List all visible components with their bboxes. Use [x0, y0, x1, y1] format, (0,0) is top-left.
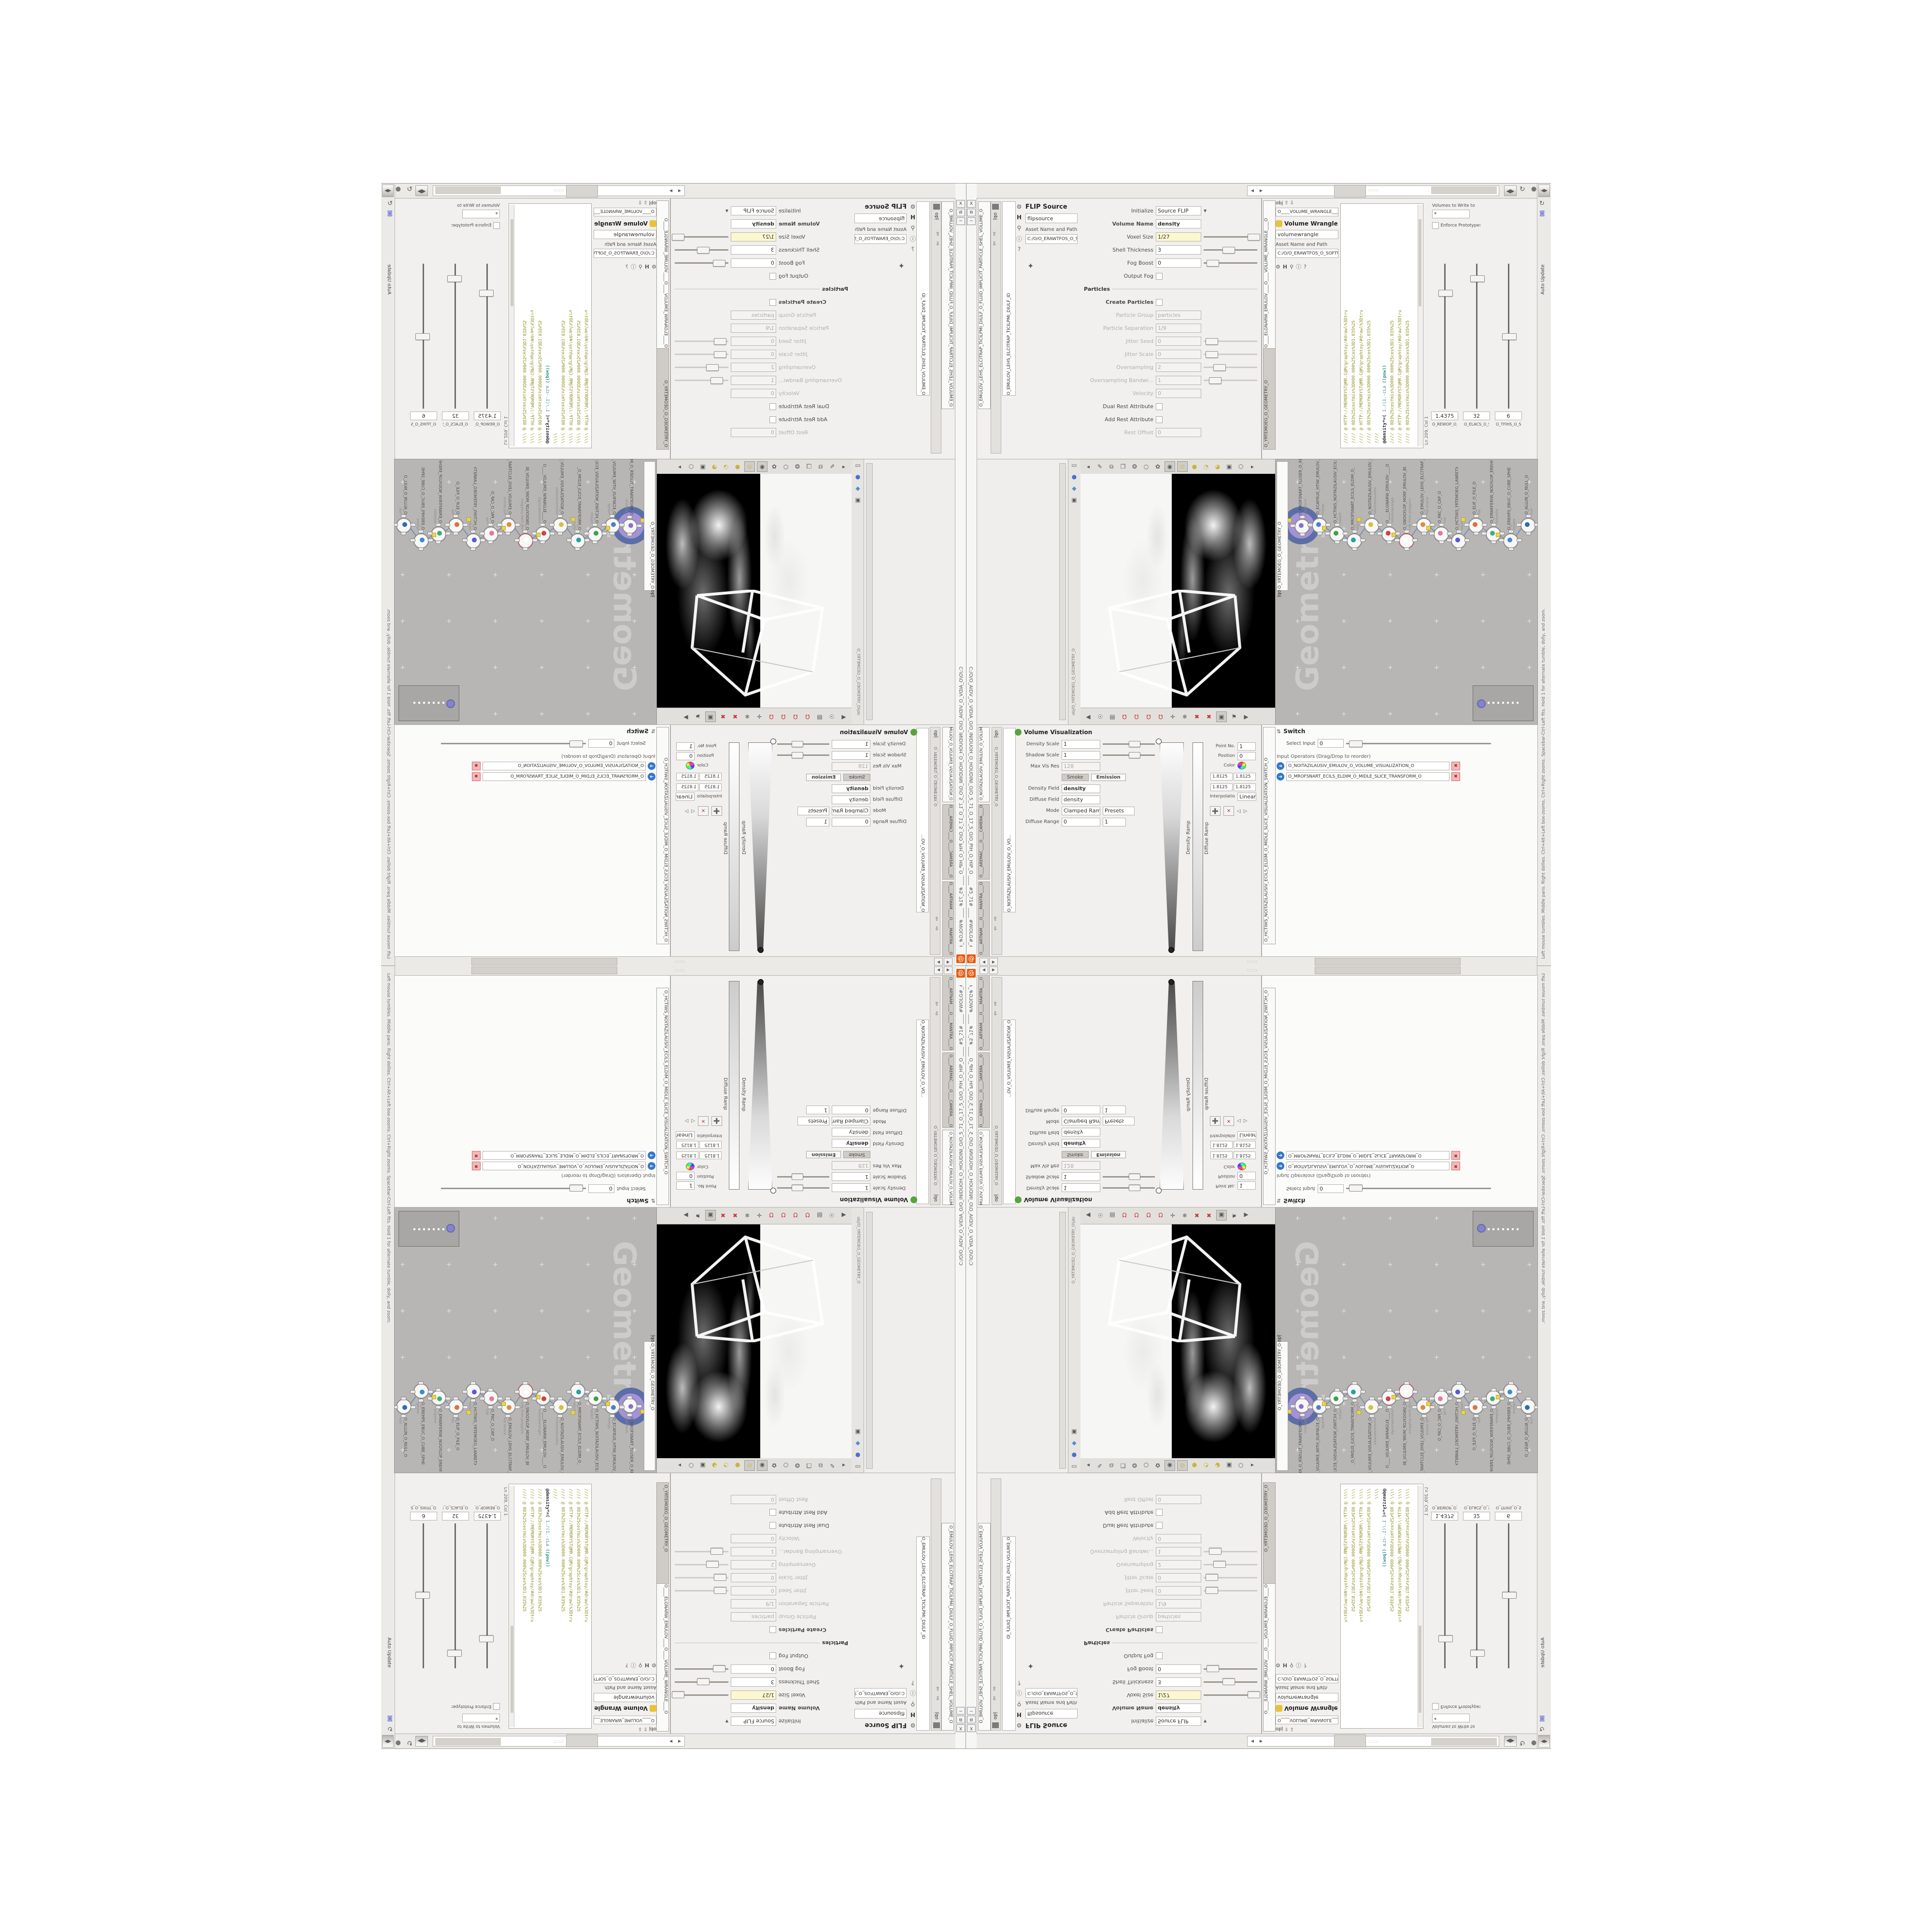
- interpolation-combo[interactable]: Linear: [1237, 1132, 1256, 1140]
- diffuse-range-field[interactable]: 0: [832, 1106, 870, 1115]
- view-box-icon[interactable]: ▣: [1216, 711, 1227, 722]
- color-value-field[interactable]: 1.8125: [1210, 1151, 1233, 1159]
- pane-split-icon[interactable]: ◀▶: [1538, 185, 1550, 197]
- display-flag[interactable]: [1496, 1395, 1500, 1399]
- auto-update-icon[interactable]: ↻: [1539, 200, 1545, 207]
- node-flag[interactable]: [1526, 532, 1531, 535]
- node-flag[interactable]: [1508, 547, 1514, 551]
- magnet-point-icon[interactable]: Ω: [1144, 1210, 1153, 1220]
- node-flag[interactable]: [1335, 1406, 1340, 1409]
- houdini-help-icon[interactable]: H: [1014, 1709, 1024, 1720]
- node-flag[interactable]: [1491, 1406, 1496, 1409]
- param-field[interactable]: particles: [1156, 1612, 1201, 1621]
- network-pane-tab[interactable]: O_YRTEMOEG_O_GEOMETRY_O: [1277, 461, 1288, 591]
- handles-sphere-icon[interactable]: ●: [1068, 471, 1080, 483]
- bulb-half-icon[interactable]: ◔: [721, 1461, 731, 1470]
- node-flag[interactable]: [1412, 1406, 1417, 1409]
- node-flag[interactable]: [1526, 1397, 1531, 1400]
- flip-node-path-combo[interactable]: O_EMULOV_LEHS_ELCITRAP_TICILPMI_DIULF_ID: [916, 201, 930, 396]
- select-input-field[interactable]: 0: [1318, 1184, 1344, 1193]
- network-node[interactable]: O_SNOGYLOP_MORF_EMULOV_BDV_O_VDB_VOLUME_…: [518, 532, 535, 548]
- vex-scrollbar[interactable]: [510, 205, 514, 446]
- wrangle-pane-tab[interactable]: O____ELGNARW_EMULOV____O____VOLUME_WRANG…: [1263, 200, 1276, 350]
- objects-cube-icon[interactable]: ◆: [852, 483, 864, 494]
- param-field[interactable]: 0: [1156, 1495, 1201, 1504]
- magnifier-icon[interactable]: ⚲: [1290, 263, 1293, 270]
- shadow-scale-field[interactable]: 1: [1062, 751, 1100, 760]
- snowflake-icon[interactable]: ❄: [1180, 712, 1190, 722]
- restore-button[interactable]: ⧉: [956, 1716, 965, 1723]
- node-flag[interactable]: [418, 1399, 424, 1402]
- node-flag[interactable]: [550, 1397, 555, 1400]
- magnet-multi-icon[interactable]: Ω: [767, 1210, 776, 1220]
- magnifier-icon[interactable]: ⚲: [639, 1662, 642, 1669]
- select-box-icon[interactable]: ▭: [1068, 1461, 1080, 1473]
- color-value-field[interactable]: 1.8125: [1234, 1151, 1256, 1159]
- param-field[interactable]: 0: [1156, 1664, 1201, 1674]
- density-scale-field[interactable]: 1: [832, 740, 870, 749]
- forward-icon[interactable]: ▶: [1241, 712, 1251, 722]
- color-value-field[interactable]: 1.8125: [1210, 783, 1233, 791]
- pin-icon[interactable]: ☉: [1095, 1210, 1105, 1220]
- network-node[interactable]: O_ALLUN_O_NULL_Onull: [397, 516, 413, 533]
- reorder-arrow-icon[interactable]: ➜: [1277, 773, 1284, 781]
- density-field-field[interactable]: density: [832, 1139, 870, 1148]
- node-flag[interactable]: [1439, 1388, 1444, 1392]
- help-icon[interactable]: ?: [1014, 1677, 1024, 1688]
- display-flag[interactable]: [1357, 1410, 1361, 1415]
- magnet-multi-icon[interactable]: Ω: [1156, 712, 1165, 722]
- point-no-field[interactable]: 1: [676, 1182, 695, 1190]
- down-arrow-icon[interactable]: ⇩: [935, 925, 939, 932]
- color-value-field[interactable]: 1.8125: [676, 1141, 698, 1149]
- pin-icon[interactable]: ☉: [827, 712, 837, 722]
- network-node[interactable]: O_MROFSNART_TLUSER_O_RESULT_TRANSFORM_Ot…: [623, 517, 639, 534]
- bulb-half-icon[interactable]: ◔: [721, 462, 731, 471]
- next-point-icon[interactable]: ▷: [1244, 1116, 1248, 1126]
- writeto-field[interactable]: *: [462, 210, 500, 218]
- node-flag[interactable]: [1404, 1381, 1409, 1385]
- network-node[interactable]: O_ELIF_O_FILE_Ofile: [449, 1399, 465, 1416]
- network-editor[interactable]: ++++++++++++++++++++++++++++++++++++ Geo…: [394, 459, 657, 725]
- param-checkbox[interactable]: [769, 1653, 776, 1660]
- scrollbar-thumb[interactable]: [471, 958, 617, 966]
- display-flag[interactable]: [432, 1395, 436, 1399]
- param-checkbox[interactable]: [769, 1522, 776, 1529]
- slider-handle[interactable]: [480, 290, 494, 297]
- node-flag[interactable]: [1508, 1381, 1514, 1385]
- hands-icon[interactable]: ✿: [769, 462, 779, 471]
- down-arrow-icon[interactable]: ⇩: [936, 1685, 940, 1691]
- info-icon[interactable]: ⓘ: [1014, 233, 1024, 244]
- notes-icon[interactable]: ▤: [815, 1210, 824, 1220]
- slider-handle[interactable]: [1209, 1548, 1222, 1555]
- remove-item-icon[interactable]: ✖: [1451, 1151, 1460, 1160]
- scrollbar-grip[interactable]: ::::::: [553, 1740, 564, 1744]
- node-flag[interactable]: [1464, 1406, 1469, 1409]
- handles-sphere-icon[interactable]: ●: [852, 471, 864, 483]
- bulb-half-icon[interactable]: ◔: [1201, 1461, 1211, 1470]
- info-icon[interactable]: ⓘ: [1014, 1688, 1024, 1699]
- node-flag[interactable]: [1464, 539, 1470, 542]
- network-breadcrumb[interactable]: obj: [1277, 590, 1286, 619]
- display-flag[interactable]: [606, 1402, 610, 1406]
- pane-tab-scroll-icon[interactable]: ◀▶: [415, 1736, 428, 1747]
- density-field-field[interactable]: density: [1062, 784, 1100, 793]
- param-field[interactable]: 0: [731, 428, 776, 437]
- up-arrow-icon[interactable]: ⇧: [936, 231, 940, 237]
- node-flag[interactable]: [411, 1406, 416, 1409]
- smoke-tab[interactable]: Smoke: [843, 774, 870, 781]
- color-value-field[interactable]: 1.8125: [1210, 773, 1233, 781]
- bulb-dim-icon[interactable]: ◕: [710, 462, 719, 471]
- aux-scrollbar[interactable]: [1059, 1212, 1066, 1469]
- param-field[interactable]: 0: [731, 337, 776, 346]
- network-node[interactable]: O_PAC_O_CAP_Ocap: [1432, 1391, 1449, 1407]
- snowflake-icon[interactable]: ❄: [1180, 1210, 1190, 1220]
- scrollbar-grip[interactable]: ::::::: [1247, 968, 1258, 973]
- vex-scrollbar[interactable]: [510, 1486, 514, 1727]
- volvis-tab[interactable]: O_NOITAZILAUSIV_EMULOV_O_VOLUME_VISUALIZ…: [978, 727, 990, 802]
- molecule-icon[interactable]: ❂: [793, 462, 802, 471]
- param-field[interactable]: density: [731, 219, 776, 228]
- notes-icon[interactable]: ▤: [1108, 1210, 1117, 1220]
- handles-sphere-icon[interactable]: ●: [1068, 1449, 1080, 1461]
- density-scale-field[interactable]: 1: [1062, 740, 1100, 749]
- help-icon[interactable]: ?: [908, 1677, 918, 1688]
- red-cross-b-icon[interactable]: ✖: [718, 1210, 728, 1220]
- wrangle-path-field[interactable]: C:/O/O_ERAWTFOS_O_SOFTWARE_O...: [594, 1674, 656, 1683]
- node-flag[interactable]: [1517, 1390, 1522, 1393]
- node-flag[interactable]: [1335, 523, 1340, 526]
- node-flag[interactable]: [394, 1406, 398, 1409]
- interpolation-combo[interactable]: Linear: [676, 1132, 695, 1140]
- network-node[interactable]: O_ELIF_O_FILE_Ofile: [1467, 516, 1483, 533]
- ramp-point-bottom[interactable]: [758, 947, 764, 953]
- node-flag[interactable]: [410, 539, 415, 542]
- node-flag[interactable]: [1421, 1397, 1427, 1400]
- diffuse-field-field[interactable]: density: [832, 796, 870, 804]
- view-box-icon[interactable]: ▣: [705, 1210, 716, 1221]
- back-icon[interactable]: ◀: [1083, 712, 1093, 722]
- info-icon[interactable]: ⓘ: [631, 263, 636, 270]
- network-node[interactable]: O_HCTIWS_NOITAZILAUSIV_ECILS_ELDIM_Oswit…: [1328, 1391, 1344, 1407]
- max-vis-res-field[interactable]: 128: [832, 1162, 870, 1170]
- node-flag[interactable]: [1307, 1406, 1313, 1409]
- spare-value-field[interactable]: 6: [410, 1512, 437, 1520]
- ramp-point-bottom[interactable]: [758, 979, 764, 985]
- slider-handle[interactable]: [1248, 234, 1260, 241]
- delete-point-icon[interactable]: ✕: [698, 1116, 709, 1126]
- forward-icon[interactable]: ▶: [1241, 1210, 1251, 1220]
- volvis-tab[interactable]: O____AREMAC____O____CAMERA____O: [942, 1052, 954, 1128]
- color-wheel-swatch[interactable]: [1237, 1163, 1246, 1170]
- vex-editor[interactable]: //// @ HTTP://MEMORYST@MR.C@M/graphtoy/#…: [509, 1484, 592, 1729]
- combo-arrow-icon[interactable]: ▼: [725, 209, 728, 213]
- param-field[interactable]: 1: [1156, 1547, 1201, 1556]
- volvis-slider[interactable]: [1103, 1187, 1155, 1189]
- headlight-icon[interactable]: ⊙: [744, 1460, 755, 1471]
- node-flag[interactable]: [1534, 523, 1538, 526]
- param-field[interactable]: 0: [731, 1573, 776, 1582]
- display-flag[interactable]: [606, 526, 610, 530]
- houdini-help-icon[interactable]: H: [645, 263, 649, 270]
- node-flag[interactable]: [401, 532, 406, 535]
- magnet-prim-icon[interactable]: Ω: [791, 1210, 800, 1220]
- close-button[interactable]: X: [956, 1724, 965, 1732]
- node-flag[interactable]: [584, 539, 590, 542]
- node-flag[interactable]: [401, 514, 406, 518]
- view-box-icon[interactable]: ▣: [705, 711, 716, 722]
- network-minimap[interactable]: [1473, 685, 1534, 721]
- color-wheel-swatch[interactable]: [686, 762, 695, 769]
- help-icon[interactable]: ?: [625, 263, 628, 270]
- flag-icon[interactable]: ⚑: [693, 712, 703, 722]
- forward-icon[interactable]: ▸: [1248, 1461, 1257, 1470]
- switch-item-name[interactable]: O_NOITAZILAUSIV_EMULOV_O_VOLUME_VISUALIZ…: [483, 762, 646, 770]
- node-flag[interactable]: [1491, 1388, 1496, 1392]
- scroll-right-icon[interactable]: ▶: [667, 1738, 675, 1745]
- volvis-slider[interactable]: [1103, 754, 1155, 756]
- scroll-left-icon[interactable]: ◀: [944, 958, 952, 966]
- delete-point-icon[interactable]: ✕: [698, 806, 709, 816]
- slider-handle[interactable]: [416, 333, 430, 340]
- slider-handle[interactable]: [672, 234, 684, 241]
- network-node[interactable]: O_HCTIWS_YRTEMOEG_LANRETXE_O_EXTERNAL_GE…: [466, 532, 483, 548]
- param-slider[interactable]: [675, 1590, 728, 1591]
- node-flag[interactable]: [1352, 1381, 1357, 1385]
- select-input-field[interactable]: 0: [588, 1184, 614, 1193]
- network-node[interactable]: O_ALLUN_O_NULL_Onull: [1519, 1399, 1535, 1416]
- red-cross-a-icon[interactable]: ✖: [1192, 1210, 1202, 1220]
- node-flag[interactable]: [428, 1390, 433, 1393]
- node-flag[interactable]: [1387, 523, 1392, 526]
- spare-slider[interactable]: [1508, 264, 1509, 409]
- slider-handle[interactable]: [714, 351, 726, 358]
- scroll-right-icon[interactable]: ▶: [934, 966, 943, 974]
- slider-handle[interactable]: [416, 1592, 430, 1599]
- display-flag[interactable]: [467, 1410, 471, 1415]
- network-pane-tab[interactable]: O_YRTEMOEG_O_GEOMETRY_O: [1277, 1341, 1288, 1471]
- magnet-grid-icon[interactable]: Ω: [1120, 1210, 1129, 1220]
- param-slider[interactable]: [1204, 367, 1257, 368]
- diffuse-range-field[interactable]: 0: [1062, 818, 1100, 826]
- red-cross-b-icon[interactable]: ✖: [1204, 712, 1214, 722]
- forward-icon[interactable]: ▸: [675, 462, 684, 471]
- select-input-field[interactable]: 0: [1318, 739, 1344, 748]
- param-field[interactable]: 2: [731, 363, 776, 372]
- red-cross-b-icon[interactable]: ✖: [1204, 1210, 1214, 1220]
- molecule-icon[interactable]: ❂: [793, 1461, 802, 1470]
- node-flag[interactable]: [1429, 1397, 1435, 1400]
- slider-handle[interactable]: [480, 1635, 494, 1642]
- param-field[interactable]: density: [1156, 1704, 1201, 1713]
- gear-icon[interactable]: ⚙: [908, 1720, 918, 1731]
- close-button[interactable]: X: [956, 200, 965, 208]
- node-flag[interactable]: [505, 1414, 511, 1418]
- slider-handle[interactable]: [792, 752, 803, 758]
- param-checkbox[interactable]: [1156, 299, 1163, 306]
- node-flag[interactable]: [1474, 514, 1479, 518]
- flip-path-field[interactable]: C:/O/O_ERAWTFOS_O_SOFTWARE_O...: [1025, 1688, 1078, 1698]
- node-flag[interactable]: [1481, 1397, 1487, 1400]
- breadcrumb[interactable]: obj: [993, 1712, 998, 1719]
- headlight-icon[interactable]: ⊙: [1177, 1460, 1188, 1471]
- auto-update-label[interactable]: Auto Update: [386, 222, 392, 295]
- node-flag[interactable]: [1456, 530, 1462, 533]
- geometry-pane-tab[interactable]: O_YRTEMOEG_O_GEOMETRY_O: [656, 1482, 669, 1584]
- color-value-field[interactable]: 1.8125: [699, 773, 722, 781]
- diamond-icon[interactable]: ⬡: [686, 1461, 696, 1470]
- scroll-left-icon[interactable]: ◀: [676, 187, 683, 194]
- node-flag[interactable]: [1404, 530, 1409, 533]
- viewport-render[interactable]: [656, 474, 852, 708]
- param-checkbox[interactable]: [1156, 416, 1163, 423]
- param-slider[interactable]: [1204, 249, 1257, 251]
- node-flag[interactable]: [436, 1406, 441, 1409]
- switch-item-name[interactable]: O_NOITAZILAUSIV_EMULOV_O_VOLUME_VISUALIZ…: [483, 1162, 646, 1170]
- layout-cards-icon[interactable]: ⧉: [816, 1461, 825, 1470]
- slider-handle[interactable]: [1438, 290, 1453, 297]
- remove-item-icon[interactable]: ✖: [1451, 1162, 1460, 1170]
- volvis-tab[interactable]: O____ARTNAM____O____MANTRA____O: [942, 975, 954, 1051]
- node-flag[interactable]: [1421, 514, 1427, 518]
- param-field[interactable]: 1/9: [731, 1599, 776, 1608]
- volvis-slider[interactable]: [777, 1187, 829, 1189]
- node-flag[interactable]: [619, 1406, 625, 1409]
- diffuse-range-field[interactable]: 0: [1062, 1106, 1100, 1115]
- scrollbar-thumb[interactable]: [1431, 186, 1497, 194]
- houdini-help-icon[interactable]: H: [1283, 263, 1287, 270]
- param-checkbox[interactable]: [1156, 1509, 1163, 1516]
- node-flag[interactable]: [1412, 523, 1417, 526]
- info-icon[interactable]: ⓘ: [1296, 263, 1301, 270]
- flip-node-path-combo[interactable]: O_EMULOV_LEHS_ELCITRAP_TICILPMI_DIULF_ID: [916, 1536, 930, 1731]
- node-flag[interactable]: [418, 1381, 424, 1385]
- volvis-tab[interactable]: O____ARTNAM____O____MANTRA____O: [942, 881, 954, 957]
- network-node[interactable]: O_EREHPS_EBUC_O_CUBE_SPHERE_Osphere: [414, 1384, 430, 1400]
- diffuse-range-hi-field[interactable]: 1: [806, 818, 829, 826]
- display-flag[interactable]: [1322, 1402, 1326, 1406]
- node-flag[interactable]: [610, 532, 615, 535]
- network-minimap[interactable]: [1473, 1211, 1534, 1247]
- diffuse-field-field[interactable]: density: [1062, 796, 1100, 804]
- objects-cube-icon[interactable]: ◆: [1068, 1438, 1080, 1449]
- scroll-right-icon[interactable]: ▶: [1257, 187, 1265, 194]
- network-node[interactable]: O_ELIF_O_FILE_Ofile: [449, 516, 465, 533]
- node-flag[interactable]: [540, 1388, 545, 1392]
- bulb-on-icon[interactable]: ●: [733, 1461, 742, 1470]
- display-flag[interactable]: [571, 1410, 575, 1415]
- next-point-icon[interactable]: ▷: [1244, 806, 1248, 816]
- enforce-prototypes-checkbox[interactable]: [493, 1703, 500, 1710]
- slider-handle[interactable]: [448, 275, 462, 282]
- param-checkbox[interactable]: [1156, 273, 1163, 280]
- magnet-point-icon[interactable]: Ω: [779, 1210, 788, 1220]
- node-flag[interactable]: [445, 532, 451, 535]
- breadcrumb[interactable]: obj: [994, 730, 999, 738]
- color-value-field[interactable]: 1.8125: [1234, 773, 1256, 781]
- smoke-tab[interactable]: Smoke: [843, 1151, 870, 1158]
- objects-cube-icon[interactable]: ◆: [852, 1438, 864, 1449]
- param-slider[interactable]: [675, 1564, 728, 1565]
- reorder-arrow-icon[interactable]: ➜: [1277, 1151, 1284, 1159]
- node-flag[interactable]: [1369, 532, 1375, 535]
- network-node[interactable]: O_EREHPS_EBUC_O_CUBE_SPHERE_Osphere: [1502, 532, 1518, 548]
- network-node[interactable]: O_MROFSNART_TLUSER_O_RESULT_TRANSFORM_Ot…: [1293, 517, 1309, 534]
- horizontal-scrollbar[interactable]: ◀ ▶ ::::::: [1247, 1736, 1499, 1747]
- param-field[interactable]: density: [1156, 219, 1201, 228]
- layout-card-icon[interactable]: ❐: [1118, 462, 1128, 471]
- wrangle-breadcrumb[interactable]: obj: [649, 1726, 656, 1732]
- network-editor[interactable]: ++++++++++++++++++++++++++++++++++++ Geo…: [1275, 459, 1538, 725]
- node-flag[interactable]: [1317, 514, 1322, 518]
- point-no-field[interactable]: 1: [1237, 742, 1256, 751]
- viewport-render[interactable]: [1080, 474, 1276, 708]
- wrangle-node-combo[interactable]: O____VOLUME_WRANGLE____O: [594, 1716, 656, 1724]
- node-flag[interactable]: [540, 1406, 545, 1409]
- param-slider[interactable]: [1204, 1668, 1257, 1670]
- remove-item-icon[interactable]: ✖: [472, 1162, 481, 1170]
- objects-cube-icon[interactable]: ◆: [1068, 483, 1080, 494]
- flag-icon[interactable]: ⚑: [693, 1210, 703, 1220]
- writeto-field[interactable]: *: [1432, 210, 1470, 218]
- node-flag[interactable]: [497, 1397, 503, 1400]
- magnet-multi-icon[interactable]: Ω: [767, 712, 776, 722]
- network-pane-tab[interactable]: O_YRTEMOEG_O_GEOMETRY_O: [644, 461, 655, 591]
- magnet-prim-icon[interactable]: Ω: [791, 712, 800, 722]
- gear-icon[interactable]: ⚙: [1276, 263, 1280, 270]
- node-flag[interactable]: [1474, 1397, 1479, 1400]
- slider-handle[interactable]: [1129, 752, 1140, 758]
- bulb-dim-icon[interactable]: ◕: [1213, 462, 1222, 471]
- add-point-icon[interactable]: ➕: [711, 1116, 722, 1126]
- node-flag[interactable]: [1456, 1381, 1462, 1385]
- volvis-slider[interactable]: [1103, 743, 1155, 745]
- param-field[interactable]: 2: [1156, 1560, 1201, 1569]
- network-node[interactable]: O_HCTIWS_YRTEMOEG_LANRETXE_O_EXTERNAL_GE…: [466, 1384, 483, 1400]
- add-point-icon[interactable]: ➕: [711, 806, 722, 816]
- sop-view-icon[interactable]: ▣: [852, 494, 864, 506]
- network-node[interactable]: O_SNOGYLOP_MORF_EMULOV_BDV_O_VDB_VOLUME_…: [1397, 532, 1414, 548]
- slider-handle[interactable]: [710, 1548, 723, 1555]
- node-flag[interactable]: [1290, 1405, 1295, 1408]
- slider-handle[interactable]: [1222, 1678, 1235, 1685]
- volvis-tab[interactable]: O_NOITAZILAUSIV_EMULOV_O_VOLUME_VISUALIZ…: [942, 1130, 954, 1205]
- scrollbar-grip[interactable]: ::::::: [1368, 188, 1379, 192]
- prev-point-icon[interactable]: ◁: [1237, 1116, 1241, 1126]
- param-field[interactable]: Source FLIP: [1156, 206, 1201, 215]
- slider-handle[interactable]: [792, 1174, 803, 1180]
- node-flag[interactable]: [1369, 1397, 1375, 1400]
- network-node[interactable]: O_MROFSNART_ECILS_ELDIM_O_MIDLE_SLICE_TR…: [1345, 1384, 1362, 1400]
- diffuse-ramp-widget[interactable]: [1193, 742, 1203, 951]
- minimize-button[interactable]: ─: [956, 1707, 965, 1715]
- param-field[interactable]: 1/27: [1156, 232, 1201, 241]
- network-minimap[interactable]: [398, 1211, 459, 1247]
- minimize-button[interactable]: ─: [956, 217, 965, 225]
- node-flag[interactable]: [1290, 524, 1295, 527]
- spare-value-field[interactable]: 1.4375: [1431, 412, 1458, 420]
- node-flag[interactable]: [1481, 532, 1487, 535]
- slider-handle[interactable]: [1129, 1185, 1140, 1191]
- param-slider[interactable]: [1204, 1681, 1257, 1683]
- slider-handle[interactable]: [1222, 247, 1235, 254]
- headlight-icon[interactable]: ⊙: [744, 461, 755, 472]
- scroll-left-icon[interactable]: ◀: [1249, 1738, 1256, 1745]
- vex-editor[interactable]: //// @ HTTP://MEMORYST@MR.C@M/graphtoy/#…: [1340, 1484, 1423, 1729]
- spare-value-field[interactable]: 32: [442, 1512, 469, 1520]
